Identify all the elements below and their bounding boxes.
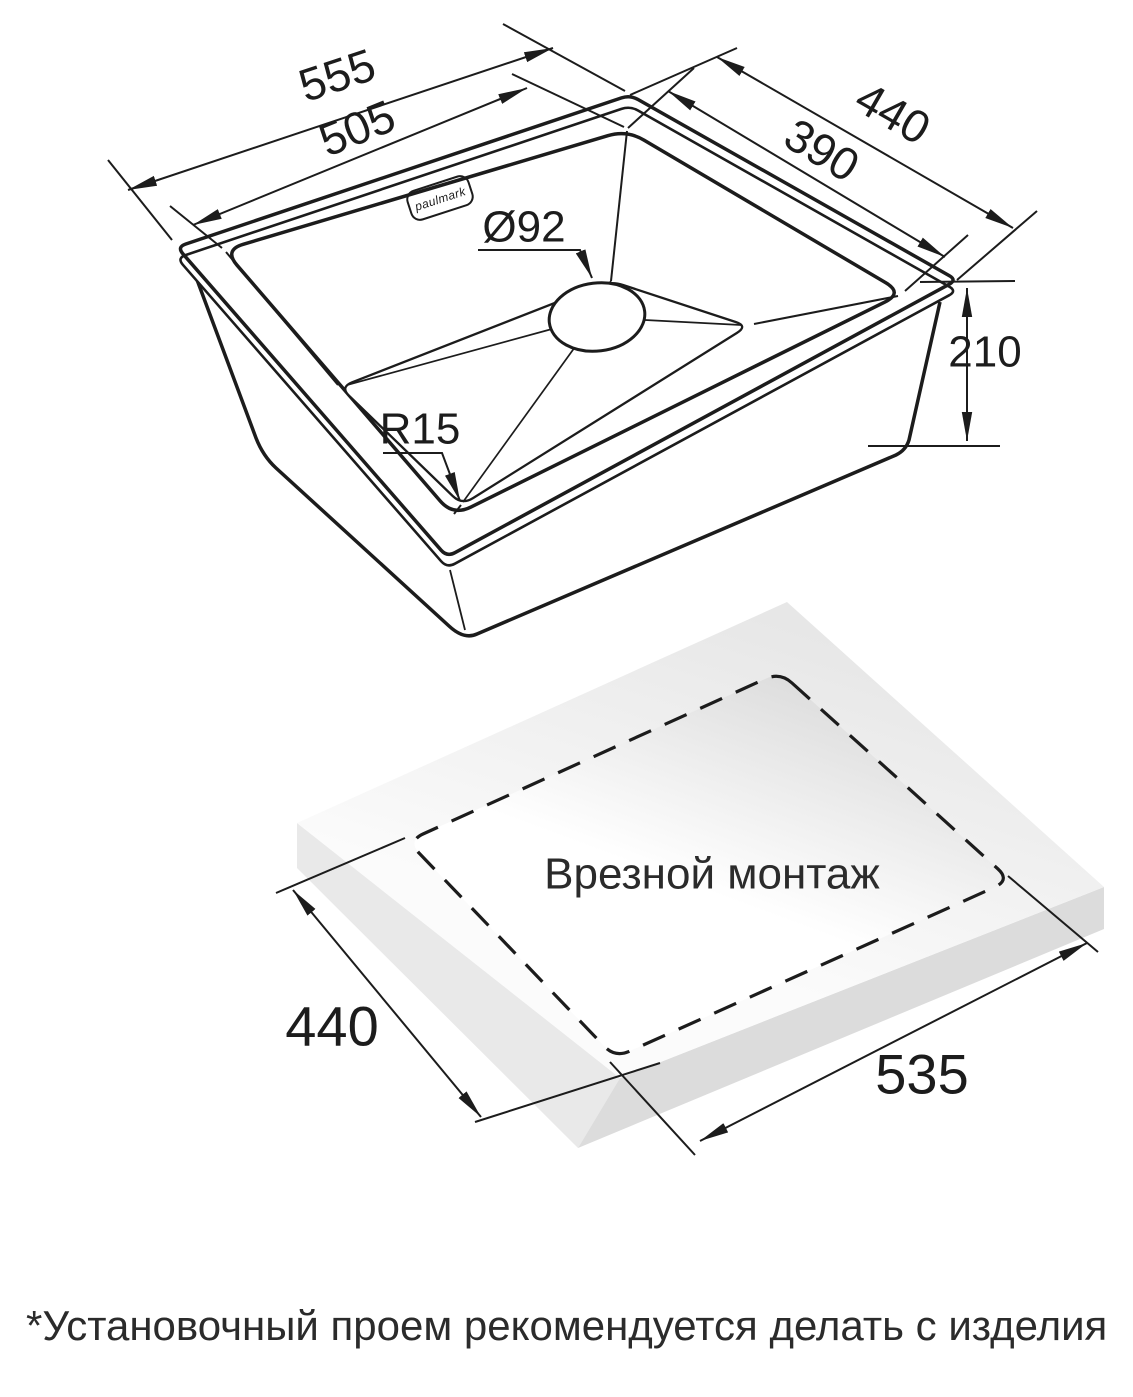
sink-installation-drawing: paulmark 555 505 440 390 [0, 0, 1133, 1397]
sink-isometric-view: paulmark 555 505 440 390 [108, 24, 1037, 636]
cutout-title: Врезной монтаж [544, 850, 880, 899]
countertop-cutout-view: Врезной монтаж 440 535 [276, 602, 1104, 1155]
label-535: 535 [875, 1043, 968, 1106]
label-r15: R15 [380, 405, 461, 454]
footnote-text: *Установочный проем рекомендуется делать… [26, 1302, 1107, 1349]
technical-drawing-page: paulmark 555 505 440 390 [0, 0, 1133, 1397]
label-o92: Ø92 [482, 203, 565, 252]
label-440-bottom: 440 [285, 995, 378, 1058]
label-210: 210 [948, 328, 1021, 377]
